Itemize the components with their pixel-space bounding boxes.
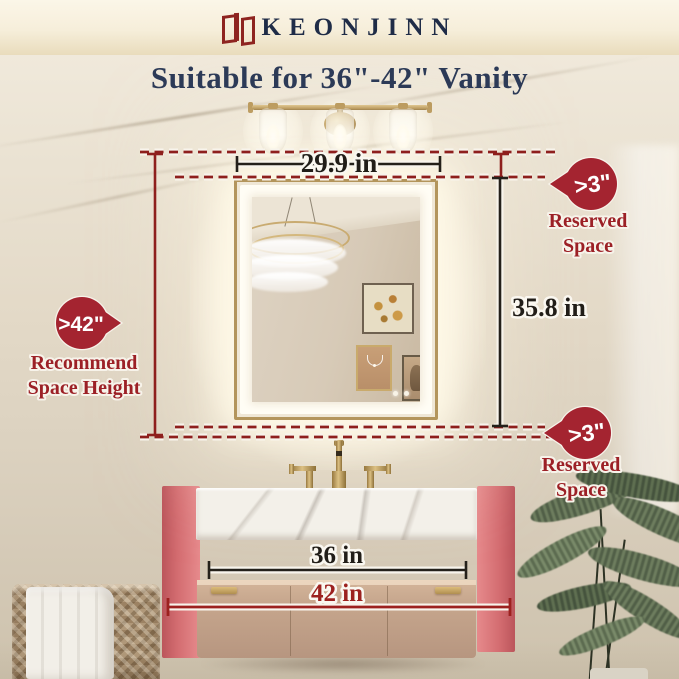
- mirror-touch-button: [404, 391, 409, 396]
- cabinet-handle: [435, 587, 461, 594]
- brand-logo: KEONJINN: [222, 12, 458, 44]
- headline: Suitable for 36"-42" Vanity: [0, 57, 679, 99]
- glass-shade: [389, 108, 417, 154]
- product-infographic: KEONJINN Suitable for 36"-42" Vanity: [0, 0, 679, 679]
- mirror-touch-button: [393, 391, 398, 396]
- glass-shade: [259, 108, 287, 154]
- cabinet-top-edge: [197, 580, 476, 585]
- plant-pot: [590, 668, 648, 679]
- faucet-aerator: [336, 451, 342, 456]
- marble-countertop: [196, 488, 477, 540]
- vanity-light-fixture: [240, 92, 440, 164]
- vanity-cabinet: [197, 580, 476, 658]
- faucet-knob-left: [289, 464, 294, 474]
- white-towel: [26, 587, 114, 679]
- cabinet-handle: [211, 587, 237, 594]
- counter-apron: [206, 540, 468, 580]
- palm-frond: [556, 609, 649, 662]
- faucet-knob-right: [386, 464, 391, 474]
- wall-highlight: [606, 145, 679, 515]
- faucet-lever-left: [291, 466, 316, 471]
- cabinet-seam: [290, 586, 291, 656]
- gold-faucet: [280, 438, 400, 493]
- chandelier-diffuser: [252, 272, 328, 292]
- brand-name: KEONJINN: [262, 14, 458, 42]
- mirror-reflection: [252, 197, 420, 402]
- led-mirror: [234, 179, 438, 420]
- wall-art-frame: [356, 345, 392, 391]
- brand-header: KEONJINN: [0, 0, 679, 55]
- pink-side-panel-right: [477, 486, 515, 652]
- palm-plant: [520, 470, 679, 679]
- pink-side-panel-left: [162, 486, 200, 658]
- brand-logo-icon: [222, 12, 252, 44]
- glass-shade: [326, 108, 354, 154]
- wall-art-frame: [362, 283, 414, 334]
- cabinet-seam: [387, 586, 388, 656]
